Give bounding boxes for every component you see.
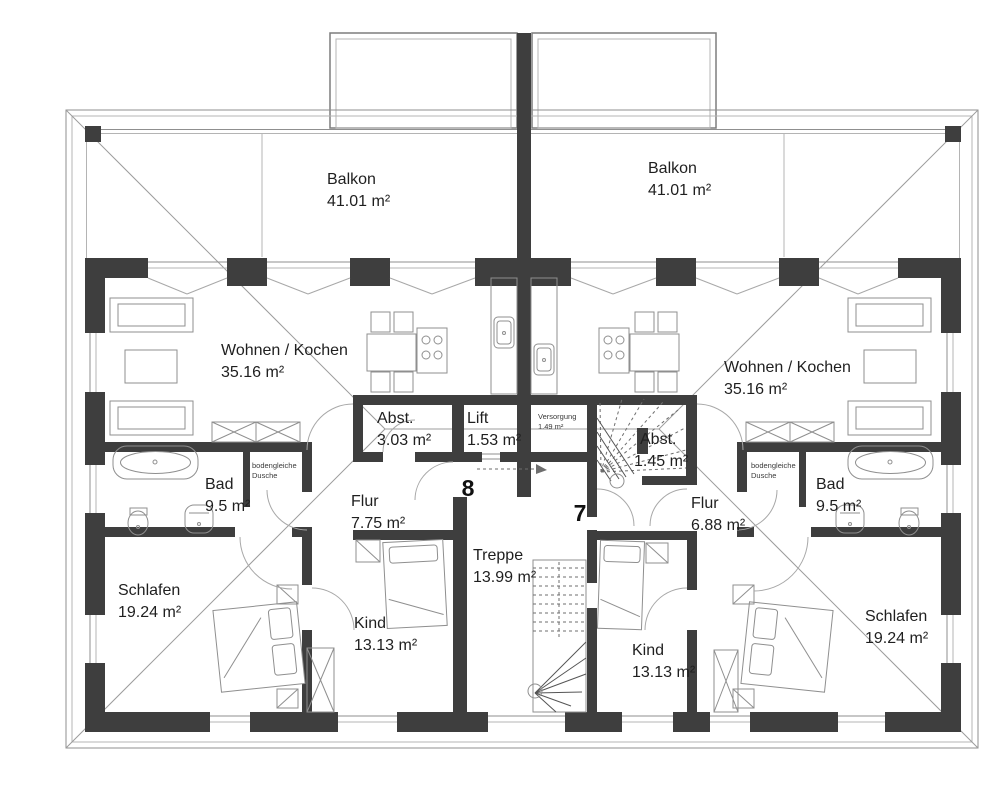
label-schlafen-left-name: Schlafen (118, 582, 180, 599)
label-schlafen-left-area: 19.24 m² (118, 604, 182, 621)
label-wohnen-left-name: Wohnen / Kochen (221, 342, 348, 359)
label-bad-left-name: Bad (205, 476, 233, 493)
window-top-3 (390, 262, 475, 294)
label-bad-left-area: 9.5 m² (205, 498, 251, 515)
main-stair (528, 560, 586, 712)
label-flur-right-area: 6.88 m² (691, 517, 746, 534)
floor-plan-drawing: Balkon 41.01 m² Balkon 41.01 m² Wohnen /… (0, 0, 1002, 800)
label-flur-right-name: Flur (691, 495, 719, 512)
label-bad-right-area: 9.5 m² (816, 498, 862, 515)
entry-arrow (477, 464, 547, 474)
dining-set-right (630, 312, 679, 392)
label-shower-right-line1: bodengleiche (751, 461, 796, 470)
label-flur-left-name: Flur (351, 493, 379, 510)
dining-set-left (367, 312, 416, 392)
label-treppe-name: Treppe (473, 547, 523, 564)
single-bed-kind-left (383, 539, 447, 628)
floor-plan-page: Balkon 41.01 m² Balkon 41.01 m² Wohnen /… (0, 0, 1002, 800)
wardrobe-right (746, 422, 834, 442)
center-party-wall (517, 33, 531, 497)
wardrobe-left (212, 422, 300, 442)
sofa-group-left (110, 298, 193, 435)
label-abst-right-area: 1.45 m² (634, 453, 689, 470)
label-versorgung-name: Versorgung (538, 412, 576, 421)
unit-number-7: 7 (574, 500, 587, 526)
window-top-5 (696, 262, 779, 294)
label-shower-left-line1: bodengleiche (252, 461, 297, 470)
label-balkon-left-name: Balkon (327, 171, 376, 188)
headbox-kind-left (356, 540, 380, 562)
double-bed-right (741, 602, 833, 692)
label-wohnen-right-area: 35.16 m² (724, 381, 788, 398)
stove-left (417, 328, 447, 373)
label-bad-right-name: Bad (816, 476, 844, 493)
label-lift-name: Lift (467, 410, 489, 427)
label-abst-left-name: Abst. (377, 410, 413, 427)
label-balkon-right-name: Balkon (648, 160, 697, 177)
label-kind-left-area: 13.13 m² (354, 637, 418, 654)
label-kind-left-name: Kind (354, 615, 386, 632)
window-top-6 (819, 262, 898, 294)
double-bed-left (213, 602, 305, 692)
label-kind-right-area: 13.13 m² (632, 664, 696, 681)
label-lift-area: 1.53 m² (467, 432, 522, 449)
single-bed-kind-right (597, 540, 644, 629)
label-schlafen-right-name: Schlafen (865, 608, 927, 625)
label-versorgung-area: 1.49 m² (538, 422, 564, 431)
window-top-4 (571, 262, 656, 294)
label-shower-right-line2: Dusche (751, 471, 776, 480)
bathroom-left (113, 446, 213, 535)
label-wohnen-right-name: Wohnen / Kochen (724, 359, 851, 376)
stove-right (599, 328, 629, 373)
label-kind-right-name: Kind (632, 642, 664, 659)
kitchen-counter-left (491, 278, 517, 394)
label-balkon-left-area: 41.01 m² (327, 193, 391, 210)
kitchen-counter-right (531, 278, 557, 394)
interior-walls-unit7 (531, 395, 941, 712)
lift-door (482, 454, 500, 459)
tall-wardrobe-schlafen-right (714, 650, 738, 712)
window-top-2 (267, 262, 350, 294)
unit-number-8: 8 (462, 475, 475, 501)
label-balkon-right-area: 41.01 m² (648, 182, 712, 199)
label-abst-left-area: 3.03 m² (377, 432, 432, 449)
label-abst-right-name: Abst. (640, 431, 676, 448)
sofa-group-right (848, 298, 931, 435)
label-treppe-area: 13.99 m² (473, 569, 537, 586)
headbox-kind-right (646, 543, 668, 563)
label-wohnen-left-area: 35.16 m² (221, 364, 285, 381)
label-schlafen-right-area: 19.24 m² (865, 630, 929, 647)
bathroom-right (836, 446, 933, 535)
label-flur-left-area: 7.75 m² (351, 515, 406, 532)
window-top-1 (148, 262, 227, 294)
label-shower-left-line2: Dusche (252, 471, 277, 480)
